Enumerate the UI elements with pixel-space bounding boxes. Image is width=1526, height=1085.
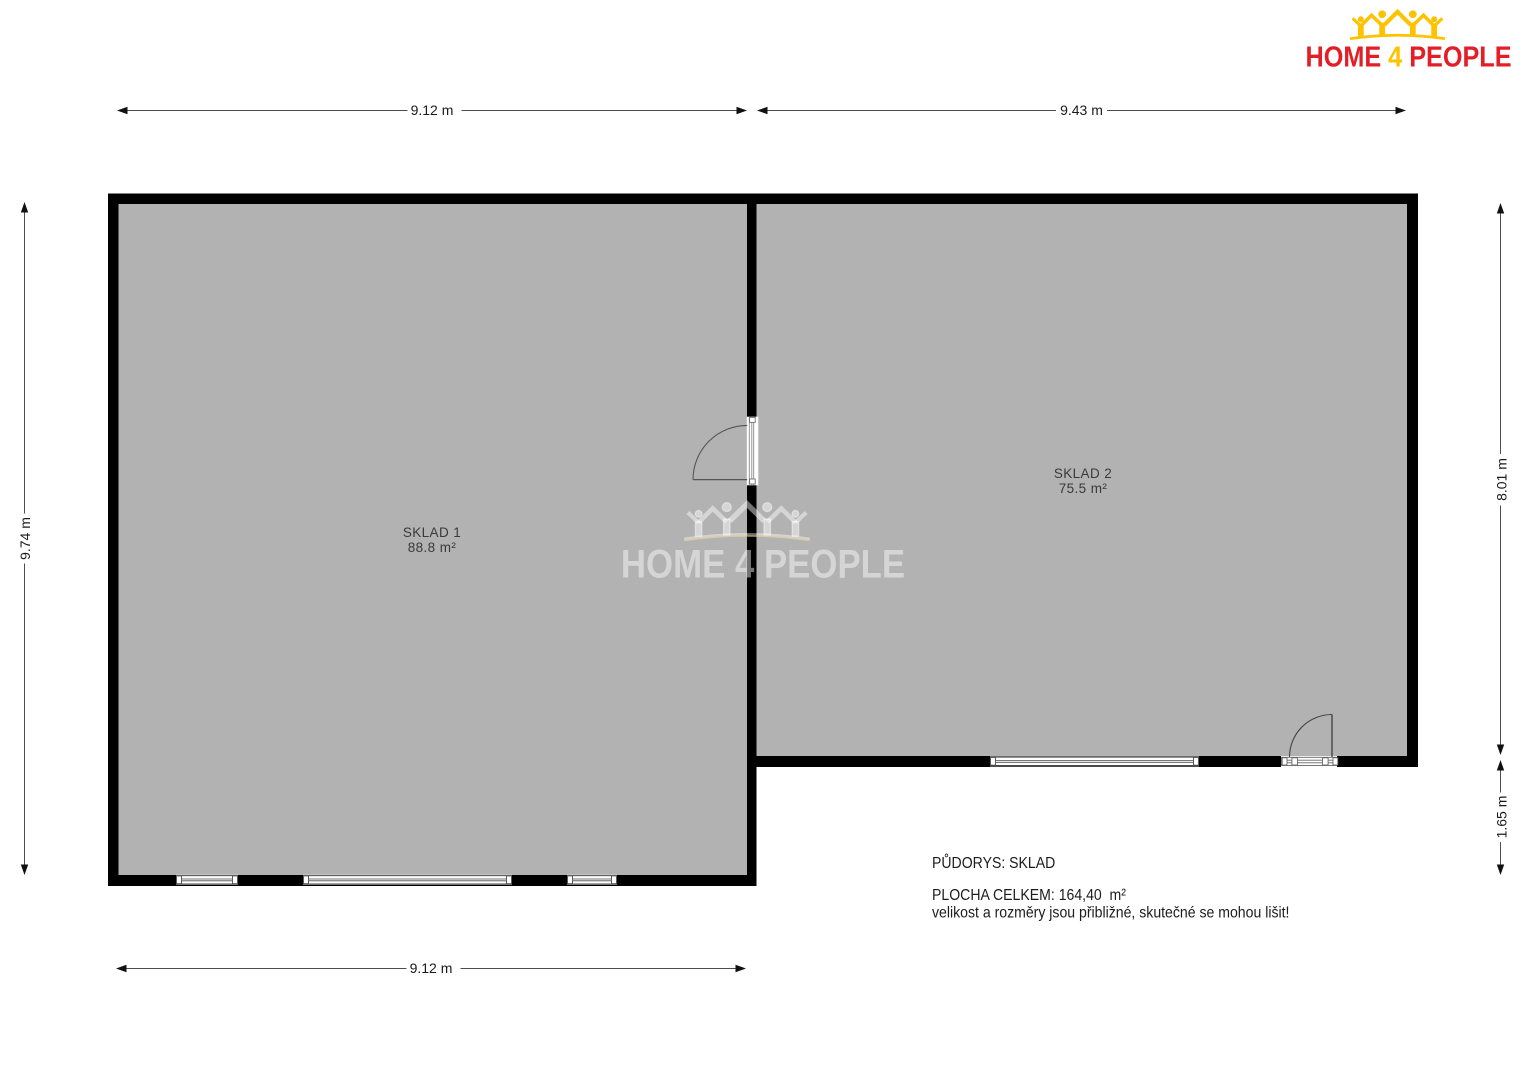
svg-text:88.8 m²: 88.8 m² bbox=[408, 540, 457, 555]
svg-text:PŮDORYS: SKLAD: PŮDORYS: SKLAD bbox=[932, 853, 1055, 872]
svg-text:75.5 m²: 75.5 m² bbox=[1059, 481, 1108, 496]
svg-text:9.12 m: 9.12 m bbox=[410, 960, 453, 976]
svg-text:9.43 m: 9.43 m bbox=[1060, 102, 1103, 118]
svg-text:9.74 m: 9.74 m bbox=[17, 517, 33, 560]
svg-text:SKLAD 1: SKLAD 1 bbox=[403, 525, 461, 540]
svg-text:9.12 m: 9.12 m bbox=[411, 102, 454, 118]
svg-text:1.65 m: 1.65 m bbox=[1494, 796, 1510, 839]
svg-text:velikost a rozměry jsou přibli: velikost a rozměry jsou přibližné, skute… bbox=[932, 904, 1289, 922]
svg-text:PLOCHA CELKEM: 164,40 m²: PLOCHA CELKEM: 164,40 m² bbox=[932, 886, 1126, 904]
svg-text:SKLAD 2: SKLAD 2 bbox=[1054, 466, 1112, 481]
svg-text:8.01 m: 8.01 m bbox=[1494, 458, 1510, 501]
svg-text:HOME 4 PEOPLE: HOME 4 PEOPLE bbox=[621, 541, 905, 586]
svg-text:HOME 4 PEOPLE: HOME 4 PEOPLE bbox=[1305, 40, 1511, 73]
